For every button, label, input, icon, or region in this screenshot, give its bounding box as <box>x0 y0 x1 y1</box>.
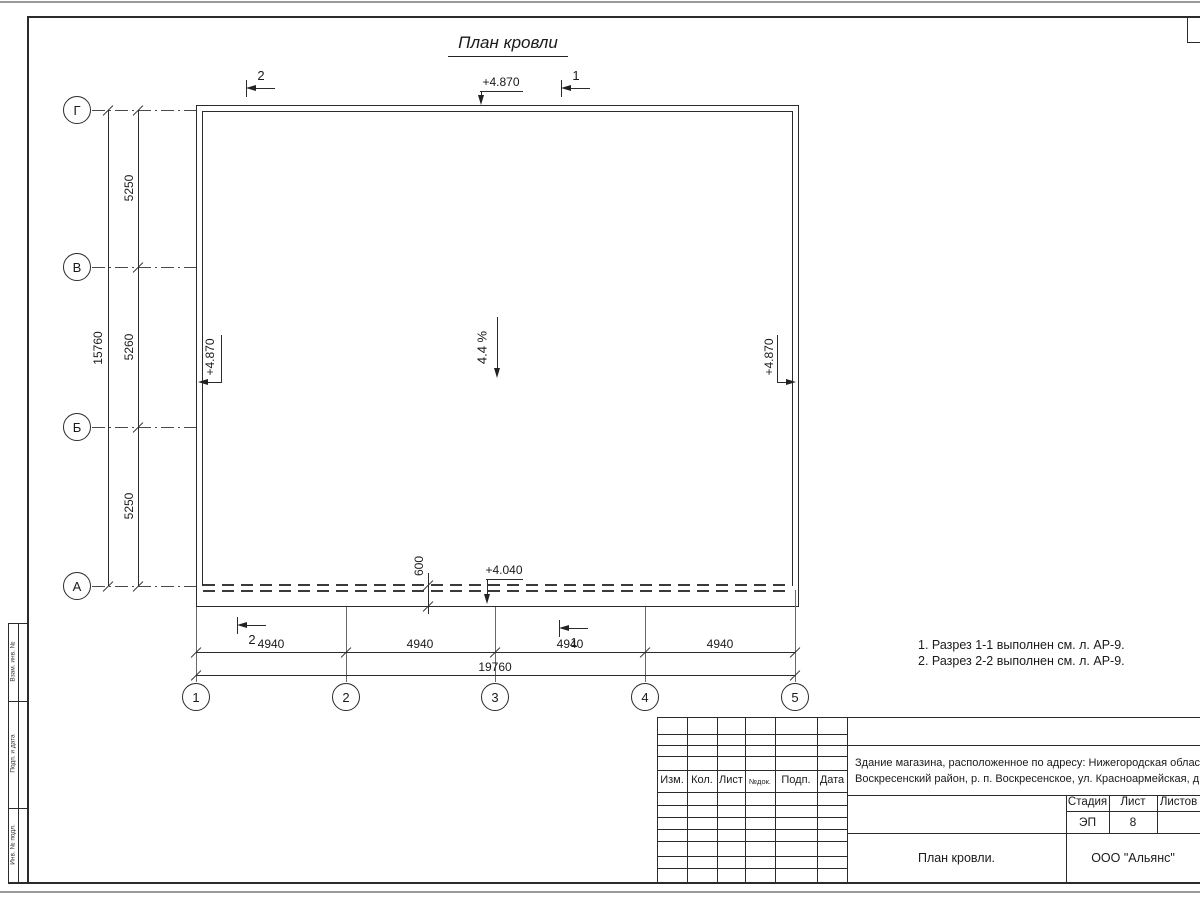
table-line <box>8 623 27 624</box>
leader-arrow <box>478 95 484 105</box>
grid-line <box>645 607 646 682</box>
revision-header: Дата <box>817 774 847 786</box>
table-line <box>717 717 718 883</box>
section-arrow <box>559 625 569 631</box>
leader-line <box>777 335 778 382</box>
table-line <box>657 717 658 883</box>
revision-header: Лист <box>717 774 745 786</box>
sheets-header: Листов <box>1157 796 1200 808</box>
axis-bubble: Б <box>63 413 91 441</box>
note-line: 2. Разрез 2-2 выполнен см. л. АР-9. <box>918 653 1125 669</box>
side-stamp-label: Инв. № подл. <box>10 810 17 880</box>
hidden-wall-line <box>203 590 792 592</box>
wall-line <box>202 111 793 112</box>
table-line <box>657 792 847 793</box>
elevation-value: +4.870 <box>466 75 536 89</box>
axis-label: 3 <box>491 690 498 705</box>
table-line <box>817 717 818 883</box>
dimension-value: 5250 <box>122 481 136 531</box>
section-arrow <box>561 85 571 91</box>
axis-bubble: 3 <box>481 683 509 711</box>
axis-label: 5 <box>791 690 798 705</box>
table-line <box>657 717 1200 718</box>
axis-label: Б <box>73 420 82 435</box>
dimension-line <box>196 675 795 676</box>
table-line <box>745 717 746 883</box>
axis-bubble: 1 <box>182 683 210 711</box>
leader-arrow <box>786 379 796 385</box>
elevation-value: +4.870 <box>762 330 776 384</box>
section-number: 2 <box>251 68 271 83</box>
table-line <box>657 868 847 869</box>
axis-label: 2 <box>342 690 349 705</box>
grid-line <box>196 607 197 682</box>
table-line <box>18 623 19 883</box>
leader-line <box>221 335 222 382</box>
elevation-value: +4.870 <box>203 330 217 384</box>
page-title: План кровли <box>448 33 568 57</box>
dimension-value: 15760 <box>91 318 105 378</box>
frame-line <box>27 16 29 883</box>
table-line <box>657 770 847 771</box>
wall-line <box>792 111 793 586</box>
section-arrow <box>246 85 256 91</box>
dimension-value: 19760 <box>465 660 525 674</box>
section-number: 1 <box>566 68 586 83</box>
sheet-edge-top <box>0 1 1200 3</box>
axis-label: А <box>73 579 82 594</box>
drawing-sheet: Взам. инв. № Подп. и дата Инв. № подл. П… <box>0 0 1200 900</box>
axis-bubble: В <box>63 253 91 281</box>
leader-line <box>480 91 523 92</box>
revision-header: №док. <box>745 777 775 786</box>
grid-line <box>795 590 796 682</box>
table-line <box>657 745 847 746</box>
side-stamp-label: Подп. и дата <box>10 719 17 789</box>
table-line <box>657 756 847 757</box>
slope-arrow-line <box>497 317 498 370</box>
dimension-value: 4940 <box>690 637 750 651</box>
table-line <box>657 734 847 735</box>
dimension-line <box>138 110 139 586</box>
axis-label: 4 <box>641 690 648 705</box>
organization-name: ООО "Альянс" <box>1066 851 1200 865</box>
table-line <box>847 745 1200 746</box>
wall-line <box>196 105 197 607</box>
stage-header: Стадия <box>1066 796 1109 808</box>
slope-value: 4.4 % <box>475 321 490 375</box>
notes: 1. Разрез 1-1 выполнен см. л. АР-9. 2. Р… <box>918 637 1125 669</box>
wall-line <box>196 105 799 106</box>
stage-value: ЭП <box>1066 815 1109 829</box>
axis-bubble: 5 <box>781 683 809 711</box>
table-line <box>1066 795 1067 883</box>
dimension-value: 5250 <box>122 163 136 213</box>
table-line <box>657 805 847 806</box>
revision-header: Подп. <box>775 774 817 786</box>
table-line <box>657 817 847 818</box>
wall-line <box>798 105 799 607</box>
dimension-line <box>108 110 109 586</box>
revision-header: Изм. <box>657 774 687 786</box>
dimension-value: 4940 <box>390 637 450 651</box>
eaves-line <box>196 606 799 607</box>
frame-line <box>1187 42 1200 43</box>
note-line: 1. Разрез 1-1 выполнен см. л. АР-9. <box>918 637 1125 653</box>
elevation-value: +4.040 <box>469 563 539 577</box>
frame-line <box>27 16 1200 18</box>
axis-bubble: Г <box>63 96 91 124</box>
project-description-line: Воскресенский район, р. п. Воскресенское… <box>855 771 1200 787</box>
drawing-title: План кровли. <box>847 851 1066 865</box>
dimension-line <box>428 573 429 614</box>
axis-bubble: А <box>63 572 91 600</box>
sheet-number: 8 <box>1109 815 1157 829</box>
table-line <box>657 841 847 842</box>
leader-arrow <box>484 594 490 604</box>
grid-line <box>346 607 347 682</box>
project-description: Здание магазина, расположенное по адресу… <box>855 755 1200 787</box>
axis-bubble: 4 <box>631 683 659 711</box>
section-arrow <box>237 622 247 628</box>
dimension-value: 600 <box>412 546 426 586</box>
section-number: 2 <box>242 632 262 647</box>
axis-bubble: 2 <box>332 683 360 711</box>
sheet-header: Лист <box>1109 796 1157 808</box>
leader-arrow <box>198 379 208 385</box>
table-line <box>687 717 688 883</box>
table-line <box>8 701 27 702</box>
slope-arrow <box>494 368 500 378</box>
leader-line <box>486 579 523 580</box>
project-description-line: Здание магазина, расположенное по адресу… <box>855 755 1200 771</box>
axis-label: В <box>73 260 82 275</box>
table-line <box>1066 811 1200 812</box>
table-line <box>847 833 1200 834</box>
hidden-wall-line <box>203 584 792 586</box>
table-line <box>657 829 847 830</box>
axis-label: Г <box>73 103 80 118</box>
table-line <box>657 856 847 857</box>
side-stamp-label: Взам. инв. № <box>10 627 17 697</box>
axis-label: 1 <box>192 690 199 705</box>
frame-line <box>8 882 1200 884</box>
section-number: 1 <box>564 635 584 650</box>
frame-line <box>1187 16 1188 42</box>
revision-header: Кол. <box>687 774 717 786</box>
table-line <box>775 717 776 883</box>
sheet-edge-bottom <box>0 891 1200 893</box>
dimension-value: 5260 <box>122 322 136 372</box>
